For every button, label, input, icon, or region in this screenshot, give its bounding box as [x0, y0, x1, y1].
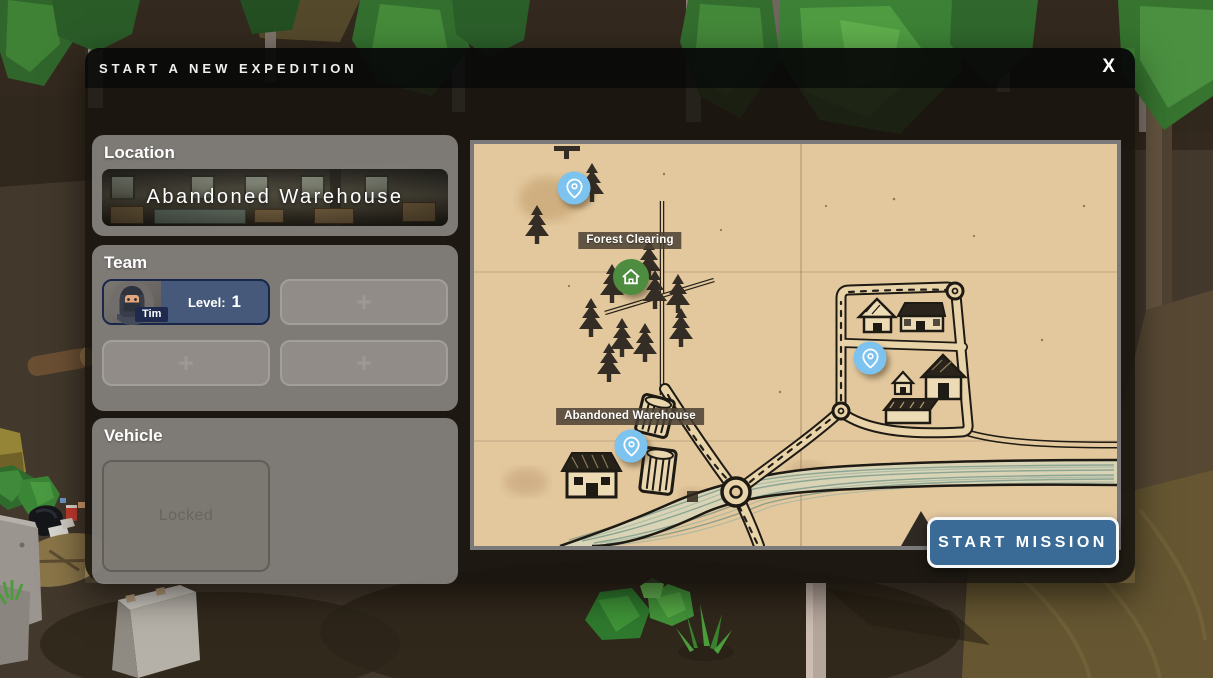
map-marker-town-pin[interactable]	[854, 342, 887, 375]
member-level: Level: 1	[161, 292, 268, 312]
team-panel: Team	[92, 245, 458, 411]
team-slot-add[interactable]: +	[280, 340, 448, 386]
vehicle-panel: Vehicle Locked	[92, 418, 458, 584]
location-banner[interactable]: Abandoned Warehouse	[102, 169, 448, 226]
close-button[interactable]: X	[1096, 54, 1121, 80]
vehicle-slot-locked[interactable]: Locked	[102, 460, 270, 572]
team-grid: Tim Level: 1 + + +	[102, 279, 448, 386]
expedition-map: Forest Clearing Abandoned Warehouse	[470, 140, 1121, 550]
dialog-title: START A NEW EXPEDITION	[85, 61, 358, 76]
locked-label: Locked	[159, 507, 214, 525]
pin-icon	[622, 435, 640, 457]
map-marker-camp-pin[interactable]	[558, 172, 591, 205]
map-marker-forest-clearing[interactable]	[613, 259, 649, 295]
team-heading: Team	[104, 253, 448, 273]
start-mission-button[interactable]: START MISSION	[927, 517, 1119, 568]
expedition-dialog: START A NEW EXPEDITION X Location Abando…	[85, 48, 1135, 583]
location-panel: Location Abandoned Warehouse	[92, 135, 458, 236]
dialog-body: Location Abandoned Warehouse Team	[85, 88, 1135, 583]
team-slot-tim[interactable]: Tim Level: 1	[102, 279, 270, 325]
pin-icon	[565, 177, 583, 199]
avatar: Tim	[104, 281, 161, 323]
pin-icon	[861, 347, 879, 369]
dialog-titlebar: START A NEW EXPEDITION X	[85, 48, 1135, 88]
location-heading: Location	[104, 143, 448, 163]
map-label-forest-clearing: Forest Clearing	[578, 232, 681, 249]
map-marker-abandoned-warehouse-pin[interactable]	[615, 430, 648, 463]
vehicle-heading: Vehicle	[104, 426, 448, 446]
location-name: Abandoned Warehouse	[102, 169, 448, 226]
team-slot-add[interactable]: +	[280, 279, 448, 325]
home-icon	[621, 268, 641, 286]
team-slot-add[interactable]: +	[102, 340, 270, 386]
map-label-abandoned-warehouse: Abandoned Warehouse	[556, 408, 704, 425]
member-name-tag: Tim	[135, 307, 168, 322]
